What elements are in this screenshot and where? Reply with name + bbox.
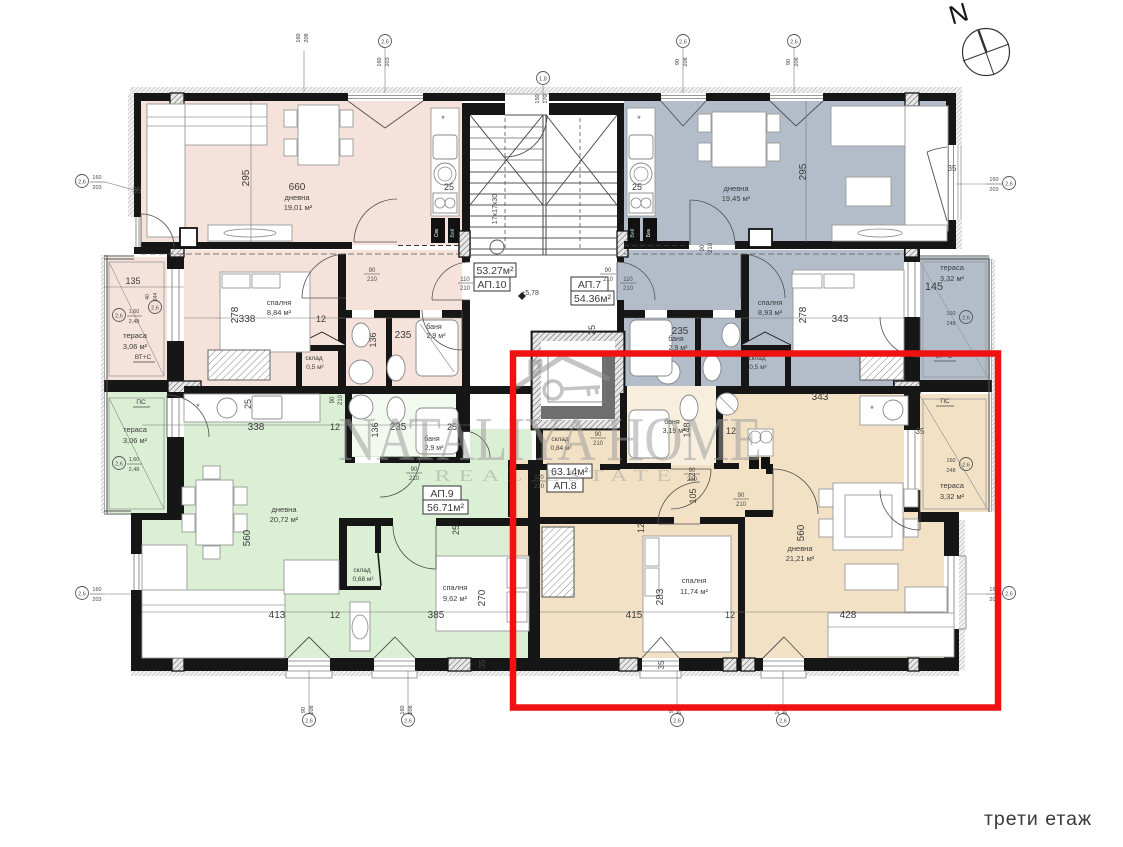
svg-text:110: 110 — [460, 277, 470, 283]
svg-text:295: 295 — [241, 169, 252, 186]
svg-text:235: 235 — [395, 330, 412, 341]
svg-text:295: 295 — [798, 163, 809, 180]
svg-text:338: 338 — [248, 422, 265, 433]
svg-text:склад: склад — [305, 355, 323, 362]
svg-text:248: 248 — [946, 468, 955, 474]
svg-text:2,6: 2,6 — [962, 316, 970, 322]
svg-text:25: 25 — [451, 525, 461, 535]
svg-text:338: 338 — [239, 314, 256, 325]
svg-text:ПС: ПС — [136, 399, 146, 406]
svg-text:Свк: Свк — [434, 228, 440, 237]
svg-text:136: 136 — [368, 332, 378, 347]
svg-text:NATALIYA HOME: NATALIYA HOME — [338, 406, 762, 474]
svg-text:160: 160 — [946, 458, 955, 464]
svg-text:248: 248 — [946, 321, 955, 327]
svg-text:9,62 м²: 9,62 м² — [443, 594, 468, 603]
svg-text:35: 35 — [133, 186, 142, 195]
svg-text:дневна: дневна — [272, 505, 298, 514]
svg-text:210: 210 — [338, 394, 344, 405]
svg-text:35: 35 — [657, 660, 666, 669]
svg-text:160: 160 — [400, 705, 406, 714]
svg-text:145: 145 — [925, 281, 943, 293]
svg-text:12: 12 — [725, 610, 735, 620]
svg-text:0,68 м²: 0,68 м² — [352, 576, 374, 583]
svg-text:150: 150 — [535, 94, 541, 103]
svg-text:210: 210 — [736, 502, 747, 508]
svg-text:2,6: 2,6 — [151, 306, 159, 312]
svg-text:90: 90 — [786, 59, 792, 65]
svg-text:210: 210 — [409, 476, 420, 482]
svg-text:REAL ESTATE: REAL ESTATE — [435, 466, 680, 485]
svg-text:210: 210 — [623, 286, 634, 292]
svg-text:235: 235 — [672, 326, 689, 337]
svg-text:160: 160 — [92, 587, 101, 593]
svg-text:2,6: 2,6 — [78, 180, 86, 186]
svg-text:спалня: спалня — [443, 583, 468, 592]
svg-text:2,6: 2,6 — [305, 719, 313, 725]
svg-text:2,6: 2,6 — [679, 40, 687, 46]
svg-text:0,5 м²: 0,5 м² — [306, 364, 324, 371]
svg-text:12: 12 — [636, 523, 646, 533]
svg-text:428: 428 — [840, 610, 857, 621]
svg-text:2,6: 2,6 — [115, 314, 123, 320]
svg-text:2,48: 2,48 — [129, 467, 140, 473]
svg-text:244: 244 — [153, 293, 159, 302]
svg-text:АП.7: АП.7 — [578, 279, 601, 291]
svg-text:170: 170 — [543, 94, 549, 103]
svg-text:8,84 м²: 8,84 м² — [267, 308, 292, 317]
svg-text:2,6: 2,6 — [779, 719, 787, 725]
svg-text:ПС: ПС — [940, 398, 950, 405]
svg-text:560: 560 — [796, 524, 807, 541]
svg-text:35: 35 — [916, 427, 925, 436]
svg-text:*: * — [441, 114, 445, 124]
svg-text:1,60: 1,60 — [129, 457, 140, 463]
svg-text:20,72 м²: 20,72 м² — [270, 515, 299, 524]
svg-text:110: 110 — [623, 277, 633, 283]
svg-text:тераса: тераса — [123, 425, 148, 434]
svg-text:210: 210 — [460, 286, 471, 292]
svg-text:415: 415 — [626, 610, 643, 621]
svg-text:баня: баня — [426, 323, 442, 331]
svg-text:трети етаж: трети етаж — [984, 808, 1092, 830]
svg-text:25: 25 — [243, 399, 253, 409]
svg-text:203: 203 — [385, 57, 391, 66]
svg-text:208: 208 — [683, 57, 689, 66]
svg-text:210: 210 — [687, 477, 698, 483]
svg-text:210: 210 — [708, 242, 714, 253]
svg-text:413: 413 — [269, 610, 286, 621]
svg-text:203: 203 — [989, 187, 998, 193]
svg-text:203: 203 — [92, 597, 101, 603]
svg-text:тераса: тераса — [940, 481, 965, 490]
svg-text:2,6: 2,6 — [78, 592, 86, 598]
svg-text:2,6: 2,6 — [1005, 592, 1013, 598]
svg-text:385: 385 — [428, 610, 445, 621]
svg-text:53.27м²: 53.27м² — [477, 265, 514, 277]
svg-text:0,5 м²: 0,5 м² — [749, 364, 767, 371]
svg-text:12: 12 — [330, 610, 340, 620]
svg-text:54.36м²: 54.36м² — [574, 293, 611, 305]
svg-text:17x17x30: 17x17x30 — [492, 194, 499, 224]
svg-text:*: * — [637, 114, 641, 124]
svg-text:3,32 м²: 3,32 м² — [940, 492, 965, 501]
svg-text:ВТ+С: ВТ+С — [135, 354, 152, 361]
svg-text:90: 90 — [605, 268, 612, 274]
svg-text:2,9 м²: 2,9 м² — [427, 333, 446, 340]
svg-text:11,74 м²: 11,74 м² — [680, 587, 708, 596]
svg-text:2,6: 2,6 — [381, 40, 389, 46]
svg-text:спалня: спалня — [758, 298, 783, 307]
svg-text:2,48: 2,48 — [129, 319, 140, 325]
svg-text:90: 90 — [700, 244, 706, 251]
svg-text:160: 160 — [989, 177, 998, 183]
svg-text:283: 283 — [655, 588, 666, 605]
svg-text:2,6: 2,6 — [673, 719, 681, 725]
svg-text:56.71м²: 56.71м² — [427, 502, 464, 514]
svg-text:208: 208 — [794, 57, 800, 66]
svg-text:160: 160 — [296, 33, 302, 42]
svg-text:спалня: спалня — [267, 298, 292, 307]
svg-text:90: 90 — [675, 59, 681, 65]
svg-text:160: 160 — [377, 57, 383, 66]
svg-text:АП.9: АП.9 — [430, 488, 453, 500]
svg-text:спалня: спалня — [682, 576, 707, 585]
svg-text:160: 160 — [92, 175, 101, 181]
svg-text:208: 208 — [309, 705, 315, 714]
svg-text:тераса: тераса — [123, 331, 148, 340]
svg-text:343: 343 — [812, 392, 829, 403]
svg-text:203: 203 — [92, 185, 101, 191]
svg-text:270: 270 — [477, 589, 488, 606]
svg-text:90: 90 — [301, 707, 307, 713]
svg-text:дневна: дневна — [724, 184, 750, 193]
svg-text:208: 208 — [304, 33, 310, 42]
svg-text:дневна: дневна — [285, 193, 311, 202]
svg-text:210: 210 — [603, 277, 614, 283]
svg-text:2,6: 2,6 — [404, 719, 412, 725]
svg-text:2,6: 2,6 — [790, 40, 798, 46]
svg-text:3,06 м²: 3,06 м² — [123, 342, 148, 351]
svg-text:25: 25 — [444, 182, 454, 192]
svg-text:105: 105 — [688, 488, 698, 503]
svg-text:278: 278 — [798, 306, 809, 323]
svg-text:2,6: 2,6 — [115, 462, 123, 468]
svg-text:160: 160 — [946, 311, 955, 317]
svg-text:35: 35 — [948, 164, 957, 173]
svg-text:12: 12 — [316, 314, 326, 324]
svg-text:Бвк: Бвк — [646, 228, 652, 237]
svg-text:21,21 м²: 21,21 м² — [786, 554, 815, 563]
svg-text:35: 35 — [478, 659, 487, 668]
svg-text:208: 208 — [408, 705, 414, 714]
svg-text:19,01 м²: 19,01 м² — [284, 203, 313, 212]
svg-text:135: 135 — [125, 276, 140, 286]
svg-text:25: 25 — [632, 182, 642, 192]
svg-text:8,93 м²: 8,93 м² — [758, 308, 783, 317]
svg-text:*: * — [870, 404, 874, 414]
svg-text:40: 40 — [145, 294, 151, 300]
svg-text:1,60: 1,60 — [129, 309, 140, 315]
svg-text:343: 343 — [832, 314, 849, 325]
svg-text:склад: склад — [353, 567, 371, 574]
svg-text:АП.10: АП.10 — [477, 279, 506, 291]
svg-text:тераса: тераса — [940, 263, 965, 272]
svg-text:210: 210 — [367, 277, 378, 283]
svg-text:660: 660 — [289, 182, 306, 193]
svg-text:дневна: дневна — [788, 544, 814, 553]
svg-text:560: 560 — [242, 529, 253, 546]
svg-text:19,45 м²: 19,45 м² — [722, 194, 751, 203]
svg-text:2,6: 2,6 — [1005, 182, 1013, 188]
svg-text:3,06 м²: 3,06 м² — [123, 436, 148, 445]
svg-text:ВиК: ВиК — [630, 228, 636, 237]
svg-text:90: 90 — [369, 268, 376, 274]
svg-text:ВиК: ВиК — [450, 228, 456, 237]
svg-text:2,6: 2,6 — [962, 463, 970, 469]
svg-text:25: 25 — [587, 325, 597, 335]
svg-text:90: 90 — [738, 493, 745, 499]
svg-text:90: 90 — [330, 396, 336, 403]
svg-text:1,8: 1,8 — [539, 77, 547, 83]
svg-text:3,32 м²: 3,32 м² — [940, 274, 965, 283]
